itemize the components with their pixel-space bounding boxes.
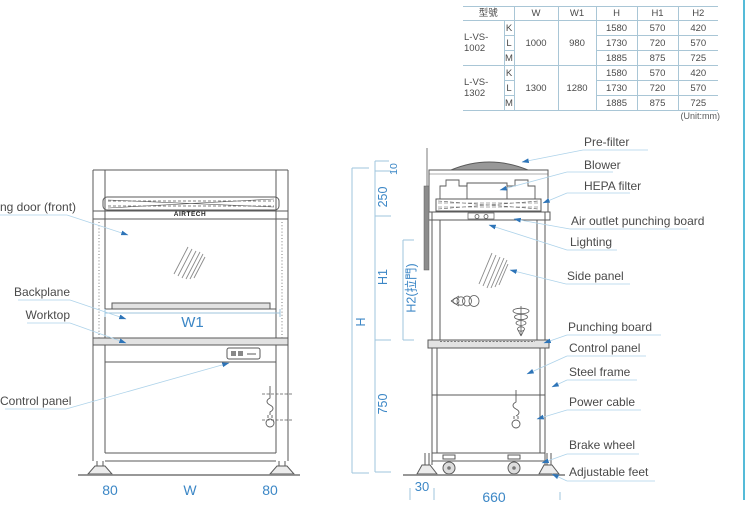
unit-note: (Unit:mm) [640,111,720,121]
col-header-w: W [514,7,558,21]
col-header-model: 型號 [463,7,514,21]
power-cable-symbol-front [266,386,274,427]
dim-h: H [354,317,368,326]
side-worktop [428,340,549,348]
side-adjustable-feet [417,453,559,474]
label-control-panel-side: Control panel [569,341,640,355]
w-cell: 1300 [514,66,558,111]
h2-cell: 570 [678,36,718,51]
label-brake-wheel: Brake wheel [569,438,635,452]
label-power-cable: Power cable [569,395,635,409]
plenum-box [429,170,548,212]
table-row: L-VS-1302 K 1300 1280 1580 570 420 [463,66,718,81]
col-header-h: H [596,7,637,21]
dim-80-right: 80 [245,482,295,498]
h-cell: 1885 [596,51,637,66]
size-cell: M [504,96,514,111]
dim-80-left: 80 [85,482,135,498]
table-row: L-VS-1002 K 1000 980 1580 570 420 [463,21,718,36]
size-cell: K [504,66,514,81]
dim-line-segments [375,161,391,472]
label-steel-frame: Steel frame [569,365,630,379]
label-punching-board: Punching board [568,320,652,334]
h1-cell: 570 [637,66,678,81]
side-view-drawing [403,148,565,475]
front-door-bottom-rail [112,303,270,309]
h1-cell: 720 [637,81,678,96]
w1-cell: 1280 [558,66,596,111]
h1-cell: 875 [637,51,678,66]
col-header-w1: W1 [558,7,596,21]
spec-table-header-row: 型號 W W1 H H1 H2 [463,7,718,21]
front-glass-hatch [174,247,205,279]
label-backplane: Backplane [0,285,70,299]
size-cell: M [504,51,514,66]
h-cell: 1730 [596,36,637,51]
label-lighting: Lighting [570,235,612,249]
dim-h1: H1 [376,269,390,285]
label-control-panel-front: Control panel [0,394,66,408]
power-cable-symbol-side [512,390,520,428]
h-cell: 1580 [596,66,637,81]
h1-cell: 875 [637,96,678,111]
lighting-lamp [475,215,479,219]
h2-cell: 725 [678,51,718,66]
h-cell: 1580 [596,21,637,36]
label-side-panel: Side panel [567,269,624,283]
side-glass-hatch [479,253,508,288]
w-cell: 1000 [514,21,558,66]
airflow-coil-vertical [513,306,529,336]
blower-outline [440,180,535,199]
label-pre-filter: Pre-filter [584,135,629,149]
label-adjustable-feet: Adjustable feet [569,465,648,479]
col-header-h1: H1 [637,7,678,21]
h2-cell: 725 [678,96,718,111]
dim-660: 660 [470,489,518,505]
dim-750: 750 [376,394,390,415]
w1-cell: 980 [558,21,596,66]
model-cell: L-VS-1002 [463,21,504,66]
diagram-page: { "table": { "headers": { "model": "型號",… [0,0,750,500]
front-adjustable-feet [88,461,294,474]
label-hepa-filter: HEPA filter [584,179,641,193]
dim-10: 10 [388,163,400,175]
h1-cell: 720 [637,36,678,51]
label-air-outlet-punching-board: Air outlet punching board [571,214,704,228]
sliding-door-edge [424,186,429,270]
h2-cell: 420 [678,21,718,36]
h2-cell: 570 [678,81,718,96]
lighting-lamp [484,215,488,219]
hepa-filter-band [436,199,541,211]
label-worktop: Worktop [0,308,70,322]
size-cell: K [504,21,514,36]
lower-cabinet [432,348,545,461]
front-bottom-crossbar [105,453,276,461]
dim-w1: W1 [105,314,280,331]
side-walls [432,212,545,465]
dim-30: 30 [400,479,444,494]
h-cell: 1885 [596,96,637,111]
page-border-line [743,0,745,500]
air-outlet-band [427,212,550,220]
dim-250: 250 [376,187,390,208]
h-cell: 1730 [596,81,637,96]
h1-cell: 570 [637,21,678,36]
brake-wheel-casters [443,455,520,474]
size-cell: L [504,81,514,96]
dim-h2-door: H2(拉門) [401,263,420,312]
col-header-h2: H2 [678,7,718,21]
label-blower: Blower [584,158,621,172]
pre-filter-dome [451,162,528,170]
dim-w: W [165,482,215,498]
front-control-panel-box [227,348,260,359]
brand-logo-text: AIRTECH [140,211,240,218]
label-sliding-door-front: ng door (front) [0,200,76,214]
airflow-coil-horizontal [451,296,479,307]
size-cell: L [504,36,514,51]
spec-table: 型號 W W1 H H1 H2 L-VS-1002 K 1000 980 158… [463,6,718,111]
model-cell: L-VS-1302 [463,66,504,111]
h2-cell: 420 [678,66,718,81]
